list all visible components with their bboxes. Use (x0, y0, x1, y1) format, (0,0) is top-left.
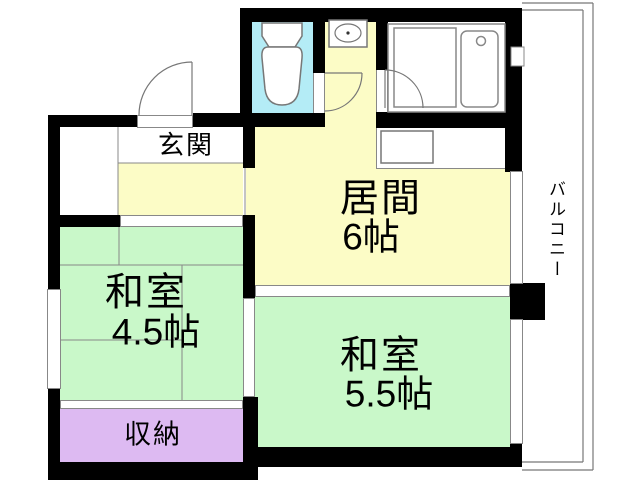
door-arc-entrance (139, 62, 192, 115)
toilet-icon (262, 23, 302, 105)
room-storage-label: 収納 (124, 422, 182, 449)
kitchen-counter (381, 131, 433, 163)
room-living-label: 居間 (340, 180, 422, 219)
room-washitsu-small-label: 和室 (105, 274, 187, 313)
room-balcony-label: バルコニー (547, 180, 564, 280)
room-washitsu-large-label: 和室 (340, 337, 422, 376)
room-washitsu-large-size: 5.5帖 (345, 376, 433, 413)
door-arc-toilet (325, 73, 362, 111)
room-washitsu-small-size: 4.5帖 (112, 314, 200, 351)
bathroom-window-box (511, 47, 524, 66)
floor-plan: 玄関 居間 6帖 和室 4.5帖 和室 5.5帖 収納 バルコニー (0, 0, 640, 480)
fixtures-layer (0, 0, 640, 480)
room-living-size: 6帖 (342, 219, 400, 256)
bathtub-icon (388, 24, 505, 112)
room-genkan-label: 玄関 (158, 132, 214, 158)
sink-icon (329, 20, 367, 47)
